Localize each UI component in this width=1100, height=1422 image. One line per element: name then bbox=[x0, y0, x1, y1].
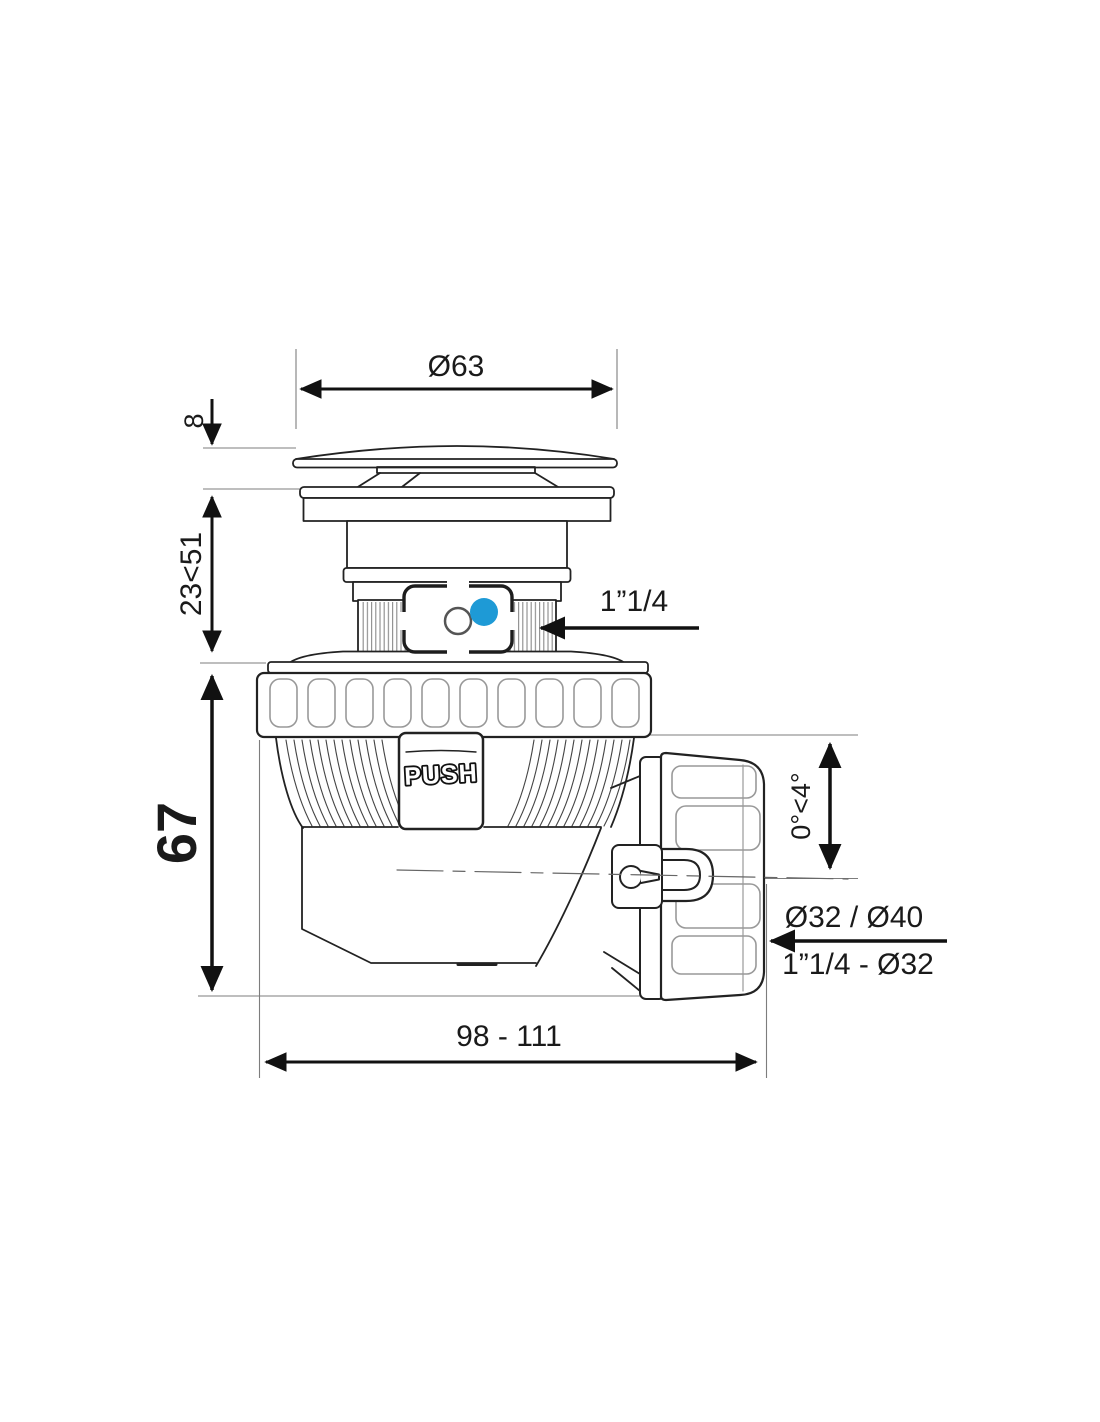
product-drawing: PUSH bbox=[257, 446, 848, 1000]
flange-lip bbox=[300, 487, 614, 498]
ribbed-lock-nut bbox=[257, 673, 651, 737]
cap-assembly bbox=[293, 446, 617, 490]
dim-cap-diameter: Ø63 bbox=[301, 350, 612, 389]
dim-cap-height: 8 bbox=[179, 399, 212, 444]
dim-label-overall-length: 98 - 111 bbox=[456, 1020, 562, 1053]
drain-trap-technical-drawing: PUSH bbox=[0, 0, 1100, 1422]
bowl-ribs-left bbox=[286, 740, 408, 826]
nut-top-plate bbox=[268, 662, 648, 673]
dim-label-outlet-adapter: 1”1/4 - Ø32 bbox=[782, 948, 934, 981]
push-tab: PUSH bbox=[399, 733, 483, 829]
flange bbox=[300, 487, 614, 521]
dim-inlet-thread: 1”1/4 bbox=[541, 585, 699, 628]
step-flange bbox=[344, 568, 571, 582]
dim-adjustment-range: 23<51 bbox=[175, 497, 212, 651]
dim-label-body-height: 67 bbox=[145, 802, 208, 864]
dim-outlet: Ø32 / Ø40 1”1/4 - Ø32 bbox=[771, 901, 947, 981]
dim-label-inlet-thread: 1”1/4 bbox=[600, 585, 668, 618]
dim-overall-length: 98 - 111 bbox=[266, 1020, 756, 1062]
inlet-clip bbox=[400, 581, 516, 657]
flange-band bbox=[304, 498, 611, 521]
technical-drawing-page: PUSH bbox=[0, 0, 1100, 1422]
clip-hole bbox=[445, 608, 471, 634]
trap-body bbox=[302, 827, 601, 966]
dim-label-outlet-angle: 0°<4° bbox=[786, 772, 816, 839]
dim-label-adjustment-range: 23<51 bbox=[175, 532, 208, 616]
body-right-arc bbox=[536, 828, 601, 966]
dim-body-height: 67 bbox=[145, 676, 212, 990]
dim-label-outlet-diameters: Ø32 / Ø40 bbox=[785, 901, 923, 934]
dim-outlet-angle: 0°<4° bbox=[786, 744, 830, 868]
dim-label-cap-diameter: Ø63 bbox=[428, 350, 485, 383]
body-left-bottom bbox=[302, 827, 536, 963]
push-label: PUSH bbox=[404, 759, 479, 791]
cap-stem-plate bbox=[377, 467, 535, 473]
cap-dome bbox=[296, 446, 614, 459]
dim-label-cap-height: 8 bbox=[179, 413, 209, 428]
blue-indicator-dot bbox=[470, 598, 498, 626]
keyhole-circle bbox=[620, 866, 642, 888]
upper-cylinder bbox=[347, 521, 567, 568]
bowl-ribs-right bbox=[508, 740, 630, 826]
